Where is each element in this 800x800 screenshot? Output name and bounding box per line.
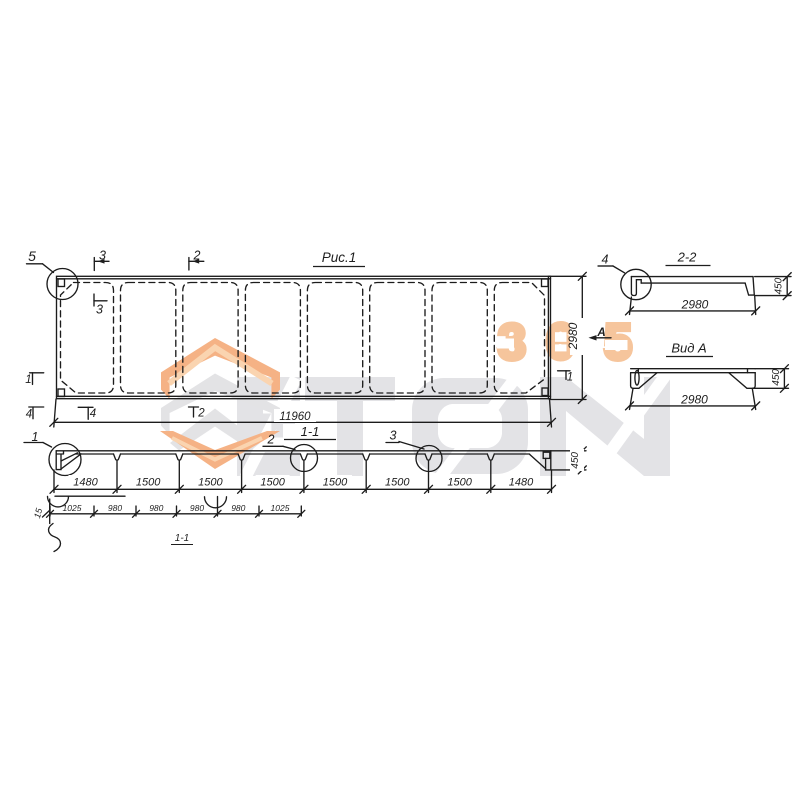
svg-text:450: 450 <box>570 452 581 469</box>
svg-text:450: 450 <box>771 369 782 386</box>
svg-text:1500: 1500 <box>260 477 285 489</box>
svg-text:1500: 1500 <box>323 477 348 489</box>
svg-text:980: 980 <box>108 503 122 513</box>
svg-text:3: 3 <box>390 429 397 443</box>
svg-text:3: 3 <box>96 303 103 317</box>
svg-text:2-2: 2-2 <box>677 250 698 265</box>
svg-text:450: 450 <box>774 277 785 294</box>
svg-text:1: 1 <box>32 430 39 444</box>
svg-text:1480: 1480 <box>509 477 534 489</box>
svg-text:Рис.1: Рис.1 <box>322 250 357 265</box>
svg-text:2980: 2980 <box>566 322 580 350</box>
svg-text:1: 1 <box>25 374 31 386</box>
svg-text:2980: 2980 <box>680 392 708 406</box>
svg-text:2980: 2980 <box>681 298 709 312</box>
svg-text:1480: 1480 <box>73 477 98 489</box>
svg-text:5: 5 <box>28 248 36 264</box>
svg-text:11960: 11960 <box>279 411 311 423</box>
svg-text:4: 4 <box>602 253 609 267</box>
svg-text:1500: 1500 <box>136 477 161 489</box>
svg-text:1: 1 <box>567 372 573 384</box>
svg-text:1500: 1500 <box>198 477 223 489</box>
svg-text:Вид А: Вид А <box>671 341 706 356</box>
svg-text:1500: 1500 <box>447 477 472 489</box>
svg-text:А: А <box>596 327 605 339</box>
svg-text:1025: 1025 <box>271 503 290 513</box>
svg-text:3: 3 <box>99 249 106 263</box>
svg-text:2: 2 <box>197 408 205 420</box>
svg-text:1500: 1500 <box>385 477 410 489</box>
svg-text:980: 980 <box>149 503 163 513</box>
svg-text:980: 980 <box>231 503 245 513</box>
svg-text:1-1: 1-1 <box>301 424 320 439</box>
svg-text:2: 2 <box>193 249 201 263</box>
svg-text:1025: 1025 <box>63 503 82 513</box>
svg-text:1-1: 1-1 <box>175 533 189 544</box>
svg-text:2: 2 <box>267 433 275 447</box>
svg-text:4: 4 <box>26 409 32 421</box>
svg-text:980: 980 <box>190 503 204 513</box>
svg-text:4: 4 <box>90 408 96 420</box>
